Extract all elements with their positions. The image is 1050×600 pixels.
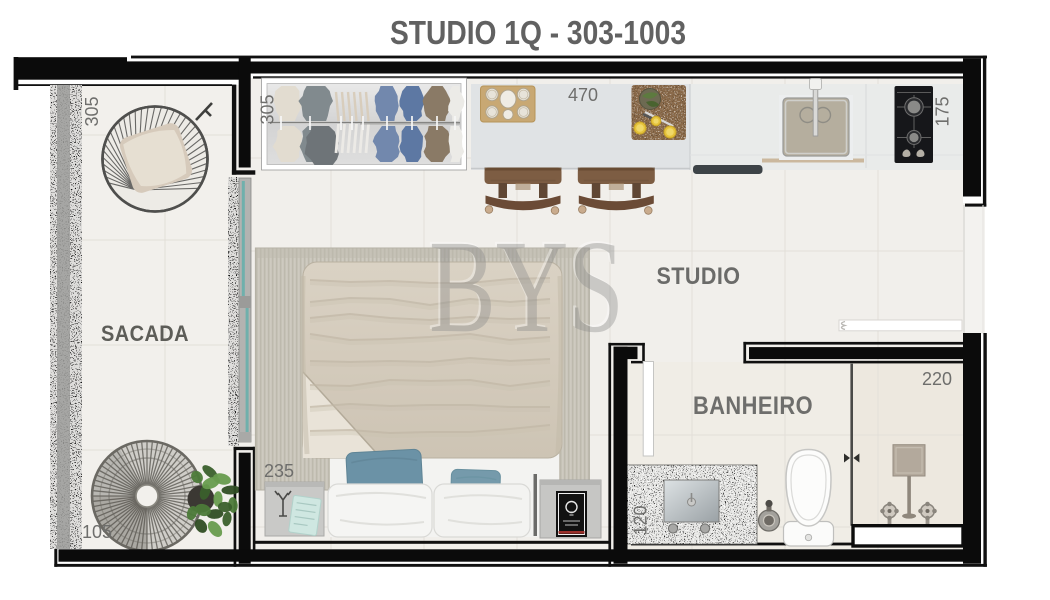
- svg-text:175: 175: [933, 96, 953, 126]
- svg-text:SACADA: SACADA: [101, 321, 189, 346]
- svg-text:105: 105: [82, 522, 112, 542]
- svg-text:470: 470: [568, 85, 598, 105]
- svg-text:STUDIO 1Q - 303-1003: STUDIO 1Q - 303-1003: [390, 14, 686, 51]
- svg-text:220: 220: [922, 369, 952, 389]
- svg-text:BANHEIRO: BANHEIRO: [693, 392, 813, 420]
- svg-text:STUDIO: STUDIO: [657, 263, 741, 290]
- svg-text:BYS: BYS: [429, 212, 624, 360]
- svg-text:120: 120: [631, 505, 651, 535]
- svg-text:305: 305: [258, 94, 278, 124]
- svg-text:235: 235: [264, 461, 294, 481]
- svg-text:305: 305: [82, 96, 102, 126]
